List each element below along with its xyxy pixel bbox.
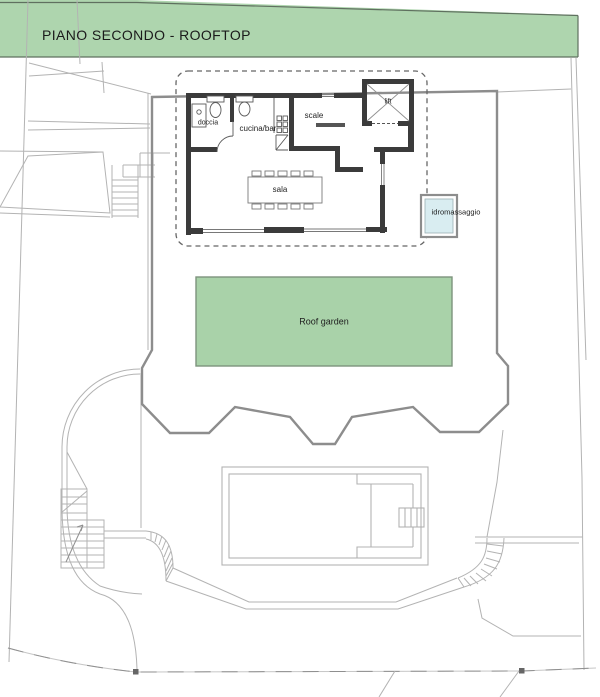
kitchen-counter-end	[276, 135, 288, 150]
room-label-lift: lift	[385, 99, 392, 106]
sink-bowl	[239, 102, 250, 116]
right-curved-stair	[458, 538, 504, 587]
left-curved-stair	[146, 531, 173, 581]
plan-drawing	[0, 0, 600, 697]
right-paths	[475, 430, 583, 636]
room-label-scale: scale	[305, 112, 324, 120]
boundary-marker	[133, 669, 139, 675]
sink-top	[236, 96, 253, 102]
room-label-sala: sala	[273, 186, 288, 194]
floorplan-sheet: PIANO SECONDO - ROOFTOP doccia cucina/ba…	[0, 0, 600, 697]
room-label-cucina-bar: cucina/bar	[240, 125, 277, 133]
upper-left-terrace-stair	[0, 151, 170, 218]
doccia-door	[217, 121, 233, 152]
wc-bowl	[210, 103, 221, 118]
boundary-marker	[519, 668, 525, 674]
bottom-boundary	[8, 648, 596, 697]
stair-handrail	[316, 123, 345, 127]
left-walkway-curves	[62, 369, 146, 669]
terrace-outline	[142, 91, 508, 444]
lower-walkway-band	[166, 568, 464, 609]
wc-tank	[207, 96, 224, 102]
pool	[222, 467, 428, 565]
area-label-roof-garden: Roof garden	[299, 318, 349, 327]
room-label-idromassaggio: idromassaggio	[432, 208, 481, 216]
room-label-doccia: doccia	[198, 120, 218, 127]
shower-drain	[197, 110, 201, 114]
sheet-title: PIANO SECONDO - ROOFTOP	[42, 27, 251, 43]
